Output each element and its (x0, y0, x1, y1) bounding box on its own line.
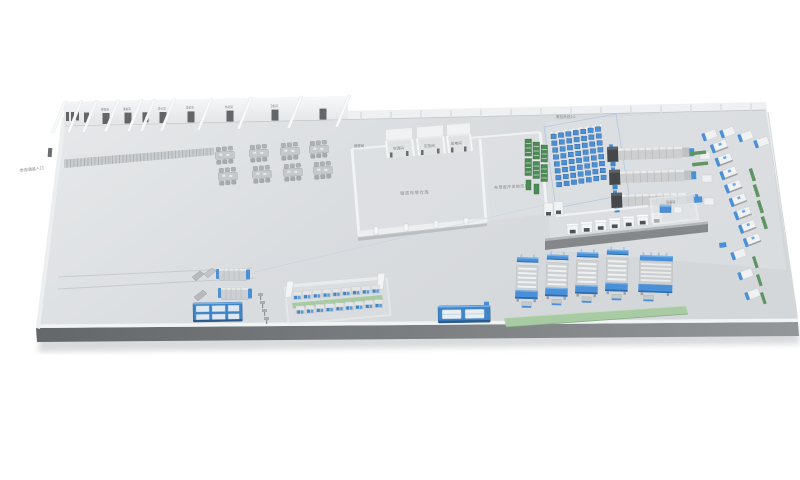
svg-text:卫生间: 卫生间 (270, 104, 278, 108)
workstation-cluster (252, 165, 272, 183)
dryer-unit (581, 222, 592, 233)
workstation-cluster (280, 142, 300, 160)
svg-text:空压间: 空压间 (424, 143, 435, 148)
svg-text:更衣间: 更衣间 (101, 108, 109, 112)
svg-text:空调间: 空调间 (393, 145, 404, 150)
utility-room: 配电间 (447, 123, 472, 153)
dryer-unit (637, 215, 648, 226)
workstation-cluster (309, 140, 329, 158)
visitor-walkway-label: 参观通道入口 (19, 164, 44, 173)
dryer-unit (609, 218, 620, 229)
workstation-cluster (215, 146, 235, 164)
workstation-cluster (283, 163, 303, 181)
factory-layout-render: 参观通道入口 更衣间 淋浴间 办公室 (0, 0, 800, 480)
equipment-room: 设备间 (650, 194, 698, 224)
hanging-system-label: 悬挂系统3.0 (556, 114, 575, 119)
dryer-unit (623, 217, 634, 228)
svg-text:会议室: 会议室 (186, 106, 194, 110)
svg-text:配电间: 配电间 (451, 140, 462, 145)
svg-text:办公室: 办公室 (158, 106, 166, 110)
workstation-cluster (218, 167, 238, 185)
utility-room: 空调间 (386, 128, 414, 159)
workstation-cluster (249, 144, 269, 162)
sorting-table (193, 302, 242, 322)
maintenance-room-label: 维修间 (354, 143, 365, 148)
utility-room: 空压间 (417, 126, 445, 157)
svg-text:休息间: 休息间 (225, 105, 233, 109)
left-wall-door (48, 148, 53, 157)
workstation-cluster (313, 161, 333, 179)
dryer-unit (567, 224, 578, 235)
equipment-room-label: 设备间 (666, 199, 675, 204)
dryer-unit (595, 220, 606, 231)
svg-text:淋浴间: 淋浴间 (123, 107, 131, 111)
